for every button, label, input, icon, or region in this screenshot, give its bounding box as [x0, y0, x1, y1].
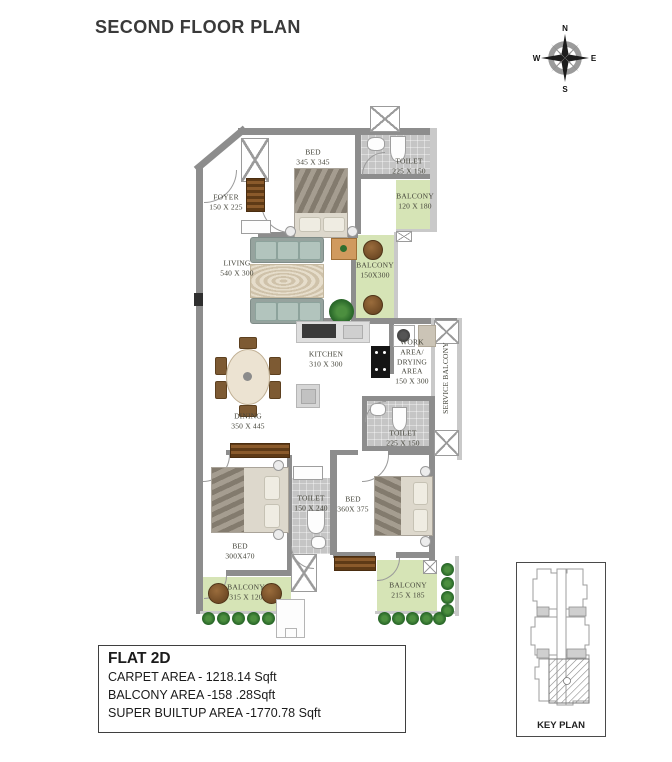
- kitchen-unit: [296, 384, 320, 408]
- pillow: [413, 509, 428, 532]
- shaft-vent: [241, 138, 269, 182]
- side-table: [331, 238, 357, 260]
- balcony-chair: [208, 583, 229, 604]
- dining-chair: [215, 381, 227, 399]
- key-plan-label: KEY PLAN: [517, 720, 605, 731]
- room-label-bed2: BED360X 375: [337, 494, 368, 514]
- room-label-kitchen: KITCHEN310 X 300: [309, 349, 343, 369]
- bed: [374, 476, 433, 536]
- plant: [262, 612, 275, 625]
- wall: [388, 450, 432, 455]
- pillow: [413, 482, 428, 505]
- stove-burner: [375, 351, 378, 354]
- dining-chair: [239, 337, 257, 349]
- page-title: SECOND FLOOR PLAN: [95, 17, 301, 38]
- compass-label-w: W: [533, 54, 541, 63]
- kitchen-counter: [296, 321, 370, 343]
- bedside-lamp: [273, 460, 284, 471]
- wall: [396, 552, 432, 558]
- console-table: [241, 220, 271, 234]
- toilet-wc: [307, 510, 325, 534]
- plant: [217, 612, 230, 625]
- plant: [378, 612, 391, 625]
- kitchen-sink: [343, 325, 363, 339]
- stove-burner: [383, 368, 386, 371]
- plant: [406, 612, 419, 625]
- plant: [232, 612, 245, 625]
- balcony-chair: [363, 295, 383, 315]
- sink: [370, 403, 386, 416]
- sink: [367, 137, 385, 151]
- wall-outer: [430, 128, 437, 232]
- floor-plan-page: SECOND FLOOR PLAN N S E W: [0, 0, 672, 762]
- pillow: [299, 217, 321, 232]
- shaft-vent: [370, 106, 400, 132]
- wardrobe: [230, 443, 290, 458]
- room-label-bed1: BED345 X 345: [296, 147, 329, 167]
- bed: [294, 168, 348, 238]
- room-label-foyer: FOYER150 X 225: [209, 192, 242, 212]
- wall: [394, 232, 398, 324]
- compass-label-s: S: [562, 85, 568, 94]
- key-plan: KEY PLAN: [516, 562, 606, 737]
- room-label-toilet1: TOILET225 X 150: [392, 156, 425, 176]
- dining-chair: [215, 357, 227, 375]
- rug: [250, 264, 324, 298]
- pillow: [264, 476, 280, 500]
- sink-counter: [293, 466, 323, 480]
- bed-blanket: [212, 468, 244, 532]
- room-label-balcony4: BALCONY215 X 185: [389, 580, 427, 600]
- plant: [441, 563, 454, 576]
- bedside-lamp: [273, 529, 284, 540]
- wall-diagonal: [194, 126, 248, 173]
- table-centerpiece: [243, 372, 252, 381]
- plant: [441, 577, 454, 590]
- wall: [362, 396, 367, 451]
- compass-label-n: N: [562, 24, 568, 33]
- key-plan-drawing: [517, 563, 604, 713]
- plant: [420, 612, 433, 625]
- sofa-cushion: [255, 241, 277, 260]
- dining-chair: [269, 381, 281, 399]
- wall: [238, 128, 432, 135]
- room-label-balcony2: BALCONY150X300: [356, 260, 394, 280]
- room-label-service-balcony: SERVICE BALCONY: [441, 342, 451, 414]
- balcony-area: BALCONY AREA -158 .28Sqft: [108, 687, 405, 705]
- shaft-vent-small: [423, 560, 437, 574]
- dining-set: [215, 337, 279, 415]
- carpet-area: CARPET AREA - 1218.14 Sqft: [108, 669, 405, 687]
- pillow: [323, 217, 345, 232]
- wardrobe: [334, 556, 376, 571]
- compass-label-e: E: [591, 54, 597, 63]
- balcony-chair: [363, 240, 383, 260]
- bed-blanket: [295, 169, 347, 213]
- bed-blanket: [375, 477, 401, 535]
- stove-burner: [383, 351, 386, 354]
- room-label-work-area: WORK AREA/ DRYING AREA150 X 300: [388, 338, 436, 387]
- cooktop: [302, 324, 336, 338]
- room-label-toilet3: TOILET150 X 240: [294, 493, 327, 513]
- room-label-living: LIVING540 X 300: [220, 258, 253, 278]
- room-label-bed3: BED300X470: [225, 541, 254, 561]
- stove-burner: [375, 368, 378, 371]
- wall: [196, 168, 203, 614]
- sofa: [250, 237, 324, 263]
- sofa-cushion: [255, 302, 277, 321]
- dining-table: [226, 349, 270, 405]
- flat-name: FLAT 2D: [108, 649, 405, 669]
- sofa-cushion: [277, 302, 299, 321]
- kitchen-unit-sink: [301, 389, 316, 404]
- electric-panel: [194, 293, 203, 306]
- room-label-toilet2: TOILET225 X 150: [386, 428, 419, 448]
- wall: [330, 455, 337, 555]
- bedside-lamp: [420, 536, 431, 547]
- room-label-balcony1: BALCONY120 X 180: [396, 191, 434, 211]
- shaft-vent: [434, 320, 459, 344]
- plant: [202, 612, 215, 625]
- sofa-cushion: [299, 302, 321, 321]
- wall: [355, 134, 361, 234]
- shaft-vent-small: [396, 231, 412, 242]
- plant: [441, 604, 454, 617]
- wall-outer: [455, 556, 459, 616]
- bedside-lamp: [347, 226, 358, 237]
- bidet: [311, 536, 326, 549]
- plant: [441, 591, 454, 604]
- table-plant: [340, 245, 347, 252]
- flat-info-box: FLAT 2D CARPET AREA - 1218.14 Sqft BALCO…: [98, 645, 406, 733]
- bedside-lamp: [420, 466, 431, 477]
- compass-rose: N S E W: [529, 22, 601, 94]
- wall: [362, 396, 432, 401]
- room-label-dining: DINING350 X 445: [231, 411, 264, 431]
- bed: [211, 467, 289, 533]
- shaft-vent: [434, 430, 459, 456]
- shoe-cabinet: [246, 178, 265, 212]
- dining-chair: [269, 357, 281, 375]
- plant: [392, 612, 405, 625]
- sofa-cushion: [299, 241, 321, 260]
- bedside-lamp: [285, 226, 296, 237]
- utility-box-small: [285, 628, 297, 638]
- sofa-cushion: [277, 241, 299, 260]
- super-builtup-area: SUPER BUILTUP AREA -1770.78 Sqft: [108, 705, 405, 723]
- pillow: [264, 504, 280, 528]
- plant: [247, 612, 260, 625]
- room-label-balcony3: BALCONY315 X 120: [227, 582, 265, 602]
